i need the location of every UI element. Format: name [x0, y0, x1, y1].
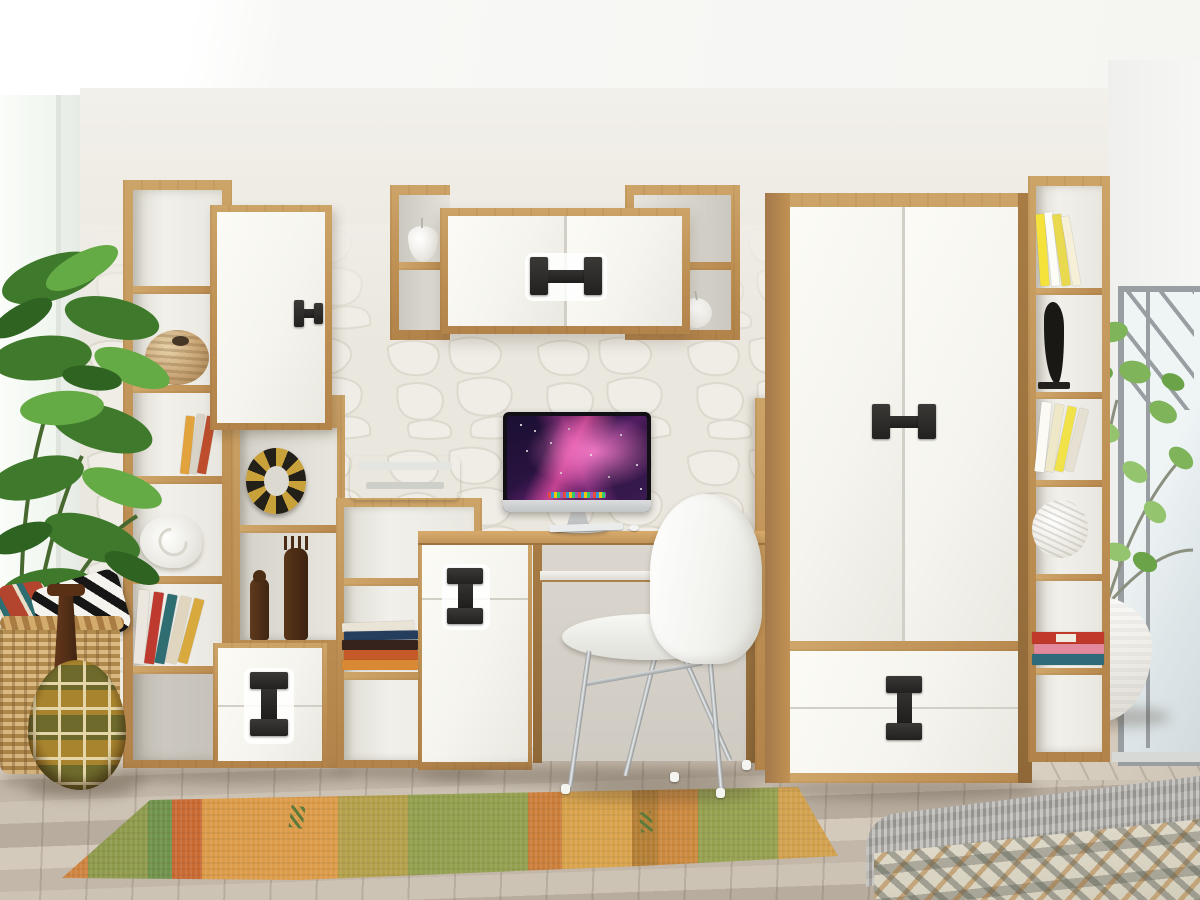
imac-wallpaper — [507, 416, 647, 500]
wardrobe-pull — [918, 404, 936, 439]
shelf — [1036, 288, 1102, 295]
chair-shadow — [560, 782, 760, 802]
mouse — [629, 525, 639, 531]
door-pull — [584, 257, 602, 295]
book — [342, 640, 418, 650]
wardrobe-left-side — [765, 193, 790, 783]
right-window-sill — [1112, 752, 1200, 762]
floor-vase-rim — [47, 584, 85, 596]
cabinet-pull — [447, 568, 483, 584]
wardrobe-drawer-pull — [886, 723, 922, 740]
drawer-pull — [261, 689, 277, 719]
wood-figurine-tall — [284, 548, 308, 640]
room-photo — [0, 0, 1200, 900]
shelf — [1036, 392, 1102, 399]
door-pull — [294, 300, 304, 327]
imac-stars — [520, 424, 522, 426]
book — [1034, 644, 1104, 654]
shelf — [133, 666, 222, 674]
wardrobe-drawer-pull — [886, 676, 922, 693]
door-pull — [548, 270, 584, 283]
rug-motif — [639, 811, 653, 832]
imac-chin — [503, 500, 651, 512]
wardrobe-base — [790, 773, 1018, 783]
chair-foot — [561, 784, 570, 794]
bottom-compartment-shade — [133, 674, 222, 760]
wood-figurine-small — [250, 578, 269, 640]
drawer-pull — [250, 672, 288, 689]
shelf — [240, 525, 337, 533]
wood-figurine-small-head — [253, 570, 266, 583]
chair-foot — [670, 772, 679, 782]
wardrobe-mid-band — [790, 641, 1018, 651]
pear-stem — [421, 218, 423, 228]
book — [342, 660, 418, 670]
printer-slot — [366, 482, 444, 489]
door-pull — [530, 257, 548, 295]
book — [1032, 654, 1104, 665]
imac-dock — [548, 492, 606, 498]
book — [344, 650, 418, 660]
printer-top — [358, 462, 452, 470]
white-woven-ball — [1032, 500, 1088, 558]
sculpture-base — [1038, 382, 1070, 389]
book-label — [1056, 634, 1076, 642]
shelf — [1036, 574, 1102, 581]
wood-figurine-tall-tines — [284, 536, 308, 550]
chair-foot — [716, 788, 725, 798]
drawer-pull — [250, 719, 288, 736]
wardrobe-pull — [872, 404, 890, 439]
wardrobe-drawer-pull — [897, 693, 912, 723]
shelf — [1036, 480, 1102, 487]
cabinet-pull — [447, 608, 483, 624]
door-pull — [314, 303, 323, 324]
ceiling — [0, 0, 1200, 101]
wardrobe-pull — [890, 416, 918, 428]
tribal-ring-hole — [264, 466, 289, 496]
cabinet-pull — [458, 584, 473, 608]
chair-foot — [742, 760, 751, 770]
chair-backrest — [650, 494, 762, 664]
shelf — [1036, 668, 1102, 675]
